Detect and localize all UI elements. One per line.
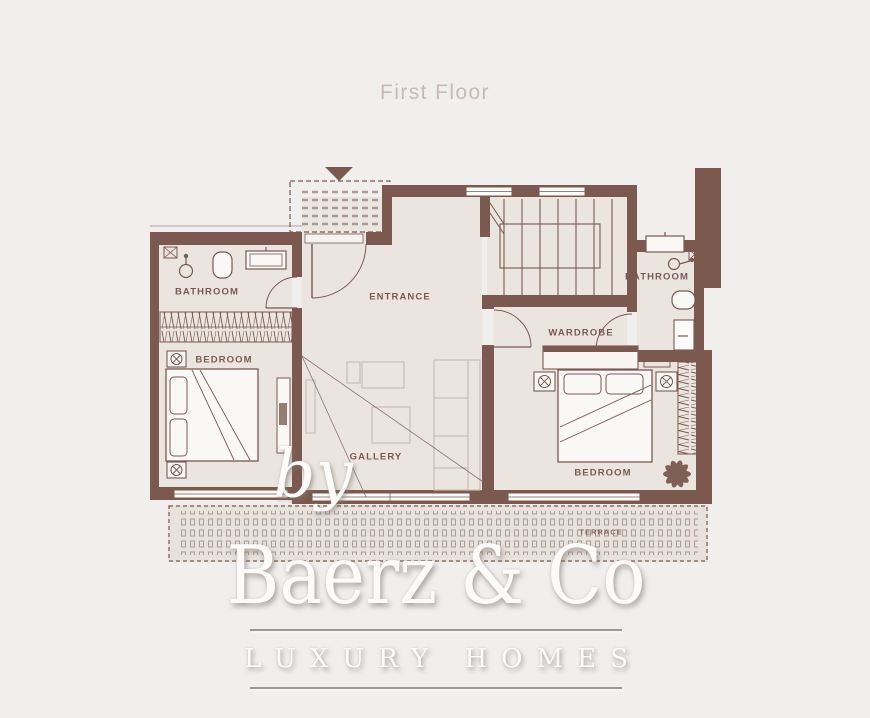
nightstand-icon [534, 372, 555, 391]
closet-left [160, 312, 292, 342]
page-title: First Floor [380, 81, 490, 105]
watermark-rule-bottom [250, 687, 622, 689]
watermark-rule-top [250, 629, 622, 631]
nightstand-icon [167, 351, 186, 367]
room-label-bathroom-right: BATHROOM [625, 272, 689, 283]
wardrobe-hatch [678, 362, 700, 454]
watermark-by: by [273, 436, 353, 513]
entrance-direction-icon [325, 167, 353, 181]
room-label-bedroom-left: BEDROOM [195, 355, 252, 366]
nightstand-icon [656, 372, 677, 391]
room-label-entrance: ENTRANCE [369, 292, 431, 303]
nightstand-icon [167, 462, 186, 478]
room-label-bathroom-left: BATHROOM [175, 287, 239, 298]
toilet-icon [672, 291, 695, 309]
watermark-tagline: LUXURY HOMES [230, 644, 642, 674]
door-panel-icon [674, 320, 694, 350]
room-label-wardrobe: WARDROBE [548, 328, 613, 339]
room-label-gallery: GALLERY [350, 452, 403, 463]
room-label-bedroom-right: BEDROOM [574, 468, 631, 479]
toilet-icon [213, 252, 232, 278]
floorplan-page: First Floor BATHROOM BEDROOM ENTRANCE WA… [0, 0, 870, 718]
sink-icon [646, 236, 684, 252]
watermark-brand: Baerz & Co [226, 528, 645, 622]
